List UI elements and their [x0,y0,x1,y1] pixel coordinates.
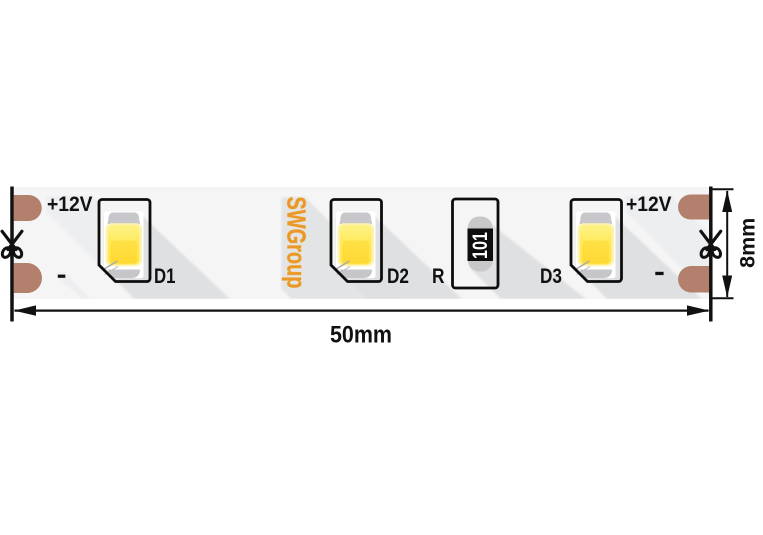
svg-text:D2: D2 [387,265,409,288]
svg-text:50mm: 50mm [330,321,392,348]
svg-text:+12V: +12V [626,192,672,216]
svg-text:101: 101 [468,232,492,259]
svg-text:D3: D3 [540,265,562,288]
svg-text:8mm: 8mm [736,218,760,268]
svg-text:SWGroup: SWGroup [281,197,311,289]
svg-text:R: R [432,265,445,288]
svg-text:D1: D1 [154,265,176,288]
svg-text:+12V: +12V [47,192,93,216]
